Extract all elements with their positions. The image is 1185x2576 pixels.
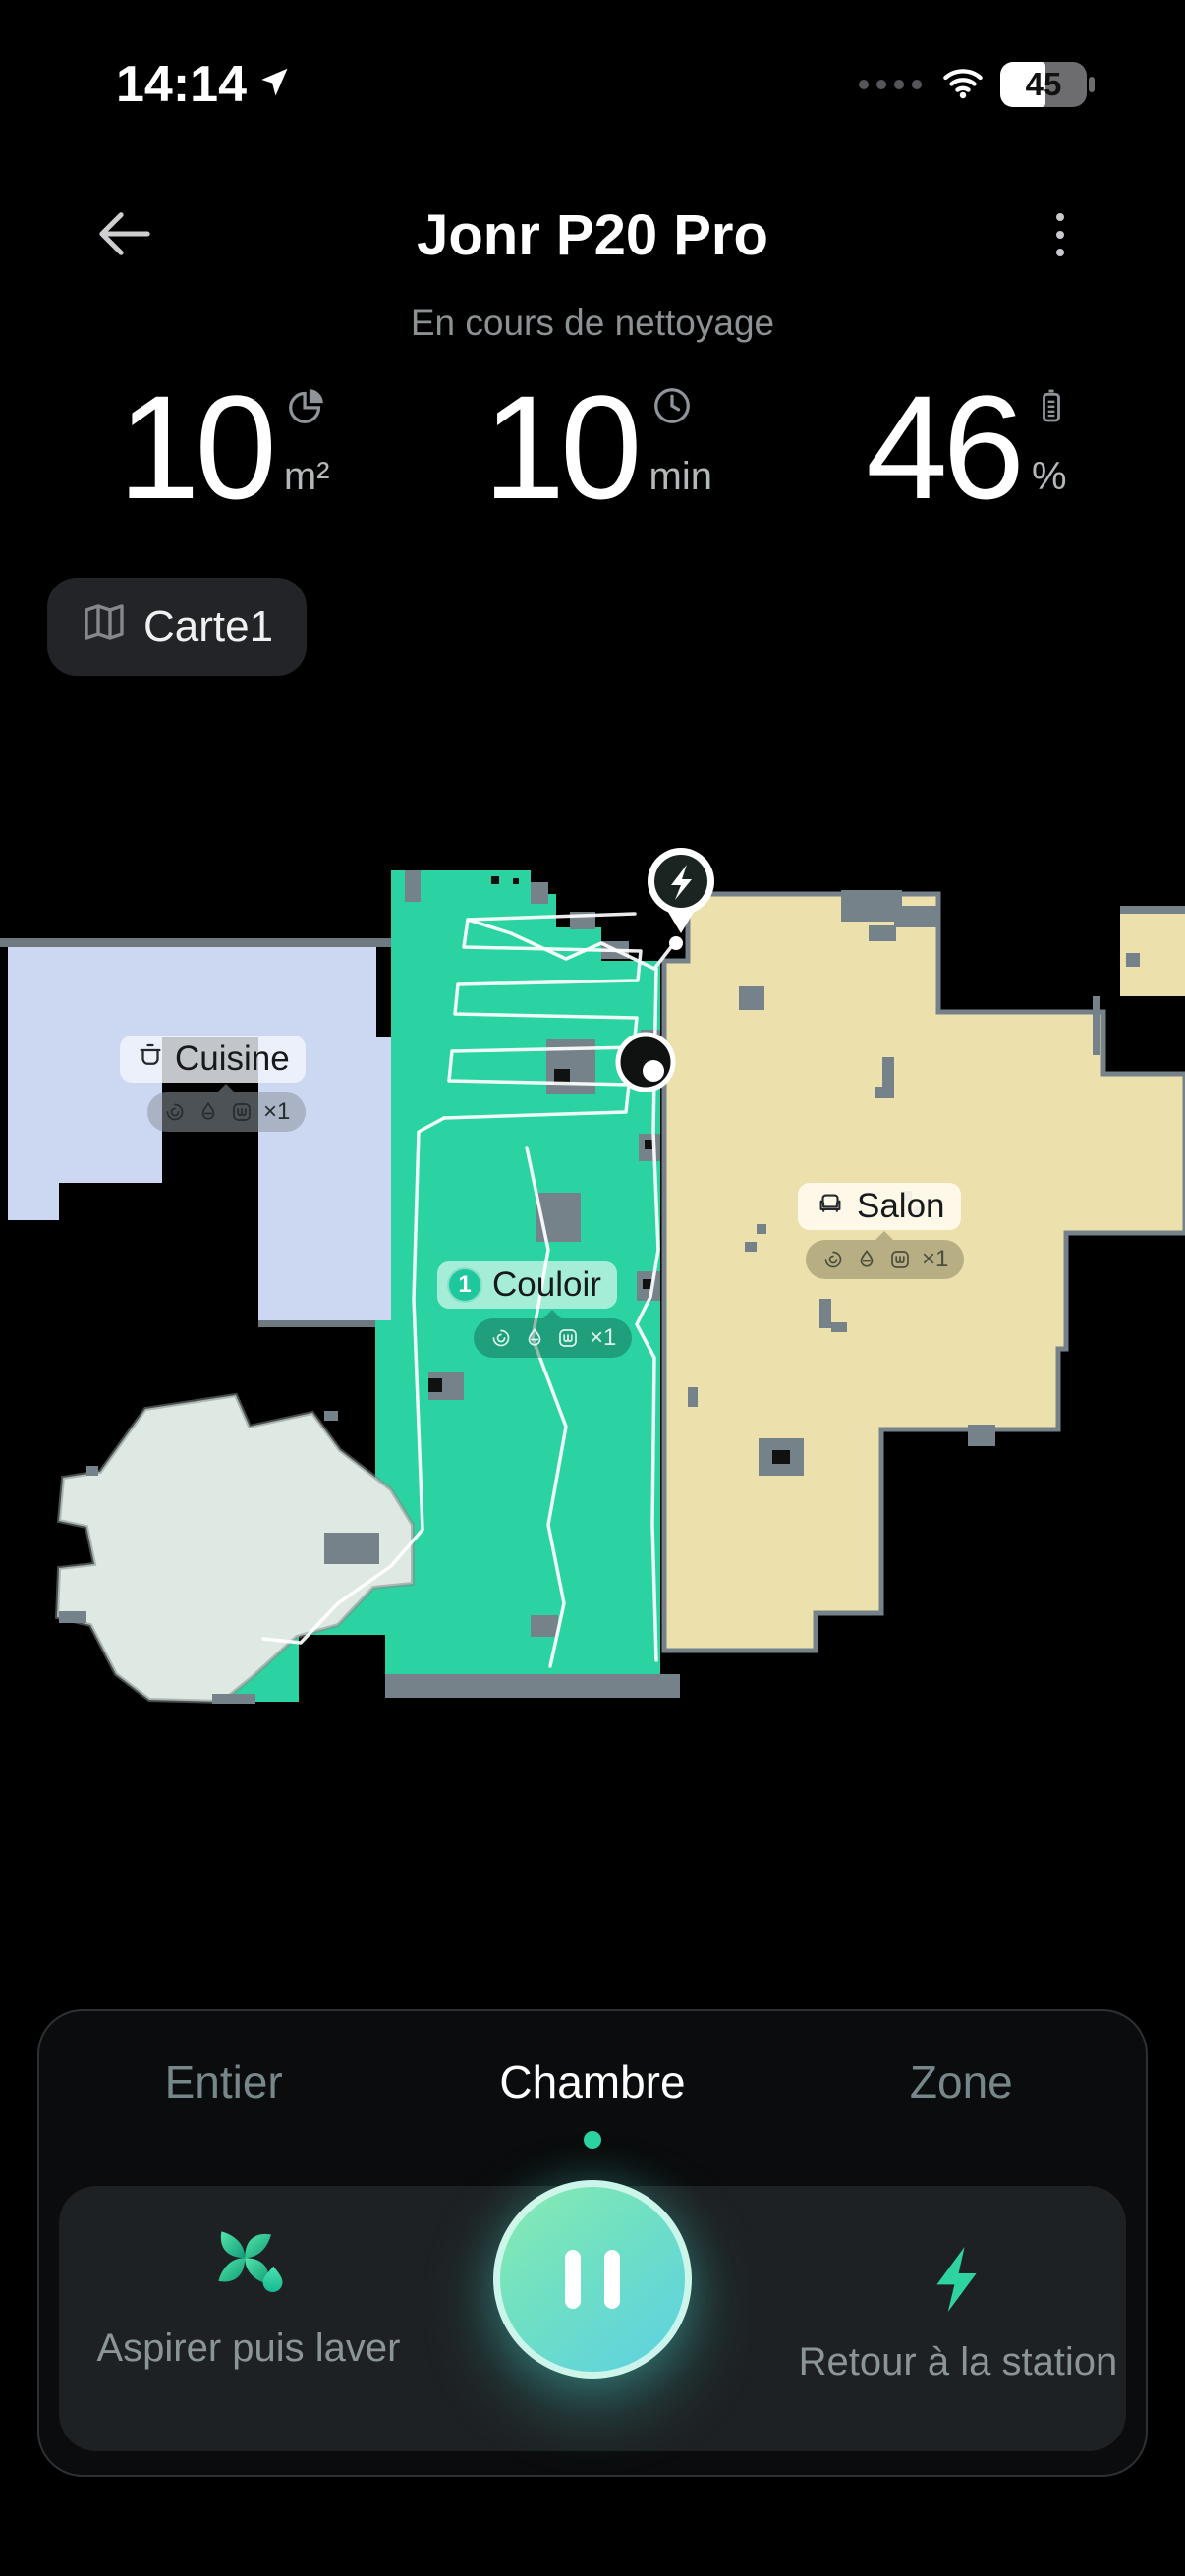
- clock-icon: [649, 383, 712, 433]
- room-name: Cuisine: [175, 1039, 290, 1079]
- tab-entier[interactable]: Entier: [39, 2054, 408, 2109]
- header: Jonr P20 Pro: [0, 200, 1185, 269]
- battery-unit: %: [1032, 455, 1071, 499]
- area-value: 10: [118, 373, 272, 521]
- battery-cap: [1089, 77, 1095, 92]
- return-to-dock-button[interactable]: Retour à la station: [762, 2237, 1155, 2389]
- wifi-icon: [941, 65, 985, 105]
- room-name: Salon: [857, 1187, 945, 1226]
- tab-zone[interactable]: Zone: [777, 2054, 1146, 2109]
- more-menu-button[interactable]: [1026, 200, 1095, 269]
- stat-area: 10 m²: [118, 373, 330, 521]
- mode-tabs: Entier Chambre Zone: [39, 2054, 1146, 2109]
- clean-mode-label: Aspirer puis laver: [96, 2322, 400, 2375]
- fan-icon: [489, 1326, 513, 1350]
- pie-chart-icon: [284, 383, 330, 433]
- robot-marker: [618, 1035, 673, 1090]
- fan-icon: [163, 1100, 187, 1124]
- mop-icon: [556, 1326, 580, 1350]
- map-icon: [81, 598, 128, 656]
- room-name: Couloir: [492, 1265, 601, 1305]
- pot-icon: [136, 1039, 165, 1079]
- room-badge-cuisine: ×1: [147, 1092, 306, 1132]
- battery-value: 46: [866, 373, 1020, 521]
- control-panel: Entier Chambre Zone: [37, 2009, 1148, 2477]
- page-title: Jonr P20 Pro: [159, 202, 1026, 268]
- stat-time: 10 min: [483, 373, 712, 521]
- tab-chambre[interactable]: Chambre: [408, 2054, 776, 2109]
- stats-row: 10 m² 10 min: [0, 373, 1185, 521]
- room-badge-couloir: ×1: [474, 1318, 632, 1358]
- pause-button[interactable]: [493, 2180, 692, 2379]
- sofa-icon: [814, 1187, 847, 1226]
- area-unit: m²: [284, 455, 330, 499]
- droplet-icon: [197, 1100, 220, 1124]
- fan-droplet-icon: [203, 2216, 294, 2310]
- room-badge-salon: ×1: [806, 1240, 964, 1279]
- signal-dots-icon: [859, 80, 922, 89]
- battery-indicator: 45: [1000, 62, 1087, 107]
- battery-percent: 45: [1000, 62, 1087, 107]
- fan-icon: [821, 1248, 845, 1271]
- map-selector-button[interactable]: Carte1: [47, 578, 307, 676]
- location-arrow-icon: [256, 65, 292, 105]
- clean-multiplier: ×1: [263, 1098, 290, 1126]
- mop-icon: [230, 1100, 254, 1124]
- clean-multiplier: ×1: [590, 1324, 616, 1352]
- clean-multiplier: ×1: [922, 1246, 948, 1273]
- room-label-couloir[interactable]: 1 Couloir: [437, 1261, 617, 1309]
- droplet-icon: [855, 1248, 878, 1271]
- stat-battery: 46 %: [866, 373, 1071, 521]
- droplet-icon: [523, 1326, 546, 1350]
- time-unit: min: [649, 455, 712, 499]
- room-label-salon[interactable]: Salon: [798, 1183, 961, 1230]
- lightning-icon: [923, 2238, 993, 2324]
- mop-icon: [888, 1248, 912, 1271]
- app-screen: 14:14 45: [0, 0, 1185, 2576]
- kebab-menu-icon: [1056, 213, 1064, 256]
- floor-map[interactable]: Cuisine ×1 1 Couloir: [0, 837, 1185, 1731]
- clock-time: 14:14: [116, 55, 247, 114]
- back-button[interactable]: [90, 200, 159, 269]
- map-selector-label: Carte1: [143, 602, 273, 651]
- time-value: 10: [483, 373, 638, 521]
- status-bar: 14:14 45: [0, 0, 1185, 114]
- active-tab-dot: [584, 2131, 601, 2149]
- controls-bar: Aspirer puis laver Retour à la station: [59, 2186, 1126, 2451]
- clean-order-badge: 1: [447, 1267, 482, 1303]
- room-label-cuisine[interactable]: Cuisine: [120, 1036, 306, 1083]
- cleaning-status-text: En cours de nettoyage: [0, 303, 1185, 344]
- pause-icon: [565, 2250, 581, 2309]
- clean-mode-button[interactable]: Aspirer puis laver: [86, 2215, 411, 2376]
- return-to-dock-label: Retour à la station: [799, 2335, 1118, 2388]
- arrow-left-icon: [94, 207, 155, 263]
- battery-icon: [1032, 383, 1071, 433]
